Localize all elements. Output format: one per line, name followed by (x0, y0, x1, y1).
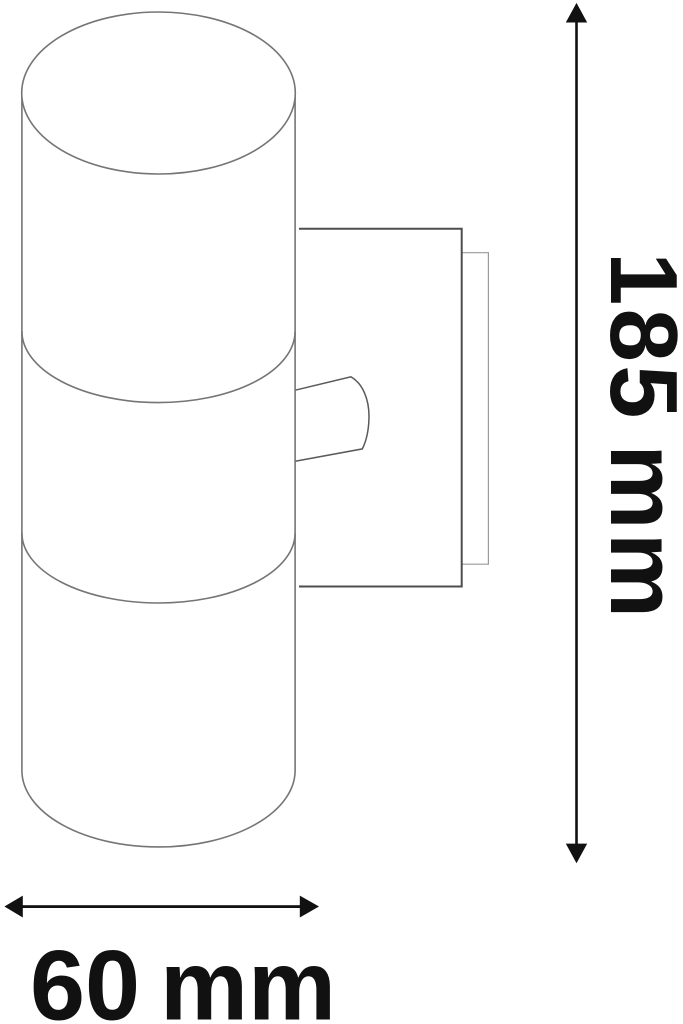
svg-text:185 mm: 185 mm (590, 252, 683, 621)
svg-text:60 mm: 60 mm (30, 930, 336, 1024)
